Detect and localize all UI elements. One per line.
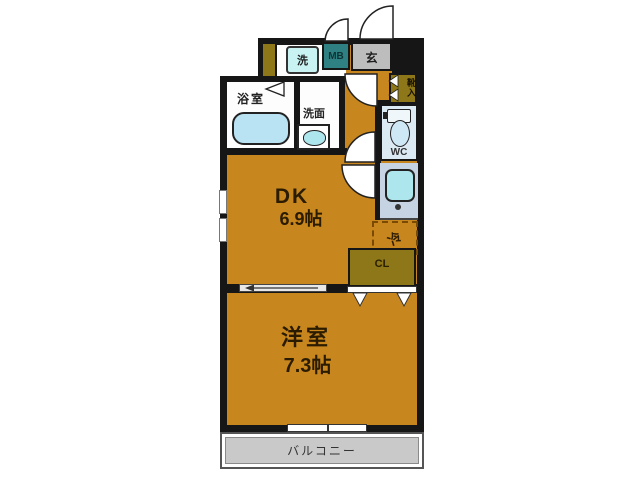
wc-label: WC (382, 148, 416, 158)
balcony-deck: バルコニー (225, 437, 419, 464)
dk-label: DK (257, 186, 327, 207)
closet-door-track (347, 286, 417, 293)
toilet-handle-icon (383, 112, 387, 119)
closet-label: CL (350, 259, 414, 270)
window-left-upper (219, 190, 227, 214)
entrance-door-arc (360, 6, 393, 39)
meter-box: MB (322, 42, 350, 70)
dk-size-label: 6.9帖 (261, 210, 341, 228)
wc-room: WC (380, 104, 418, 161)
shoe-box-label: 靴入 (403, 78, 415, 98)
kitchen-counter (380, 163, 418, 220)
closet: CL (348, 248, 416, 287)
meter-box-label: MB (324, 52, 348, 62)
shoe-box: 靴入 (389, 73, 417, 104)
western-room-size-label: 7.3帖 (265, 356, 350, 376)
washroom-label: 洗面 (296, 109, 332, 120)
floorplan: 洗 MB 玄 靴入 WC 冷 浴室 洗面 CL (0, 0, 640, 480)
western-room-label: 洋室 (266, 327, 346, 349)
balcony-label: バルコニー (226, 445, 418, 457)
kitchen-sink-icon (385, 169, 415, 202)
bathtub-icon (232, 112, 290, 145)
window-left-lower (219, 218, 227, 242)
vanity-sink (297, 124, 330, 150)
wall-left (220, 76, 227, 432)
wall-right (417, 38, 424, 432)
wall-top-right-chunk (392, 40, 424, 74)
pipe-space (261, 42, 277, 78)
vanity-bowl-icon (303, 130, 326, 146)
wall-bath-top (220, 76, 346, 82)
balcony-window-divider (327, 425, 329, 431)
washing-machine: 洗 (286, 46, 319, 74)
washing-machine-label: 洗 (288, 56, 317, 67)
toilet-bowl-icon (390, 120, 410, 147)
burner-dot-icon (395, 204, 401, 210)
entrance-label: 玄 (353, 52, 390, 64)
wall-hall-left (339, 76, 345, 150)
balcony-window (287, 424, 367, 432)
entrance-step: 玄 (351, 42, 392, 71)
sliding-door (239, 284, 327, 292)
bathroom-label: 浴室 (230, 93, 272, 105)
balcony: バルコニー (220, 432, 424, 469)
